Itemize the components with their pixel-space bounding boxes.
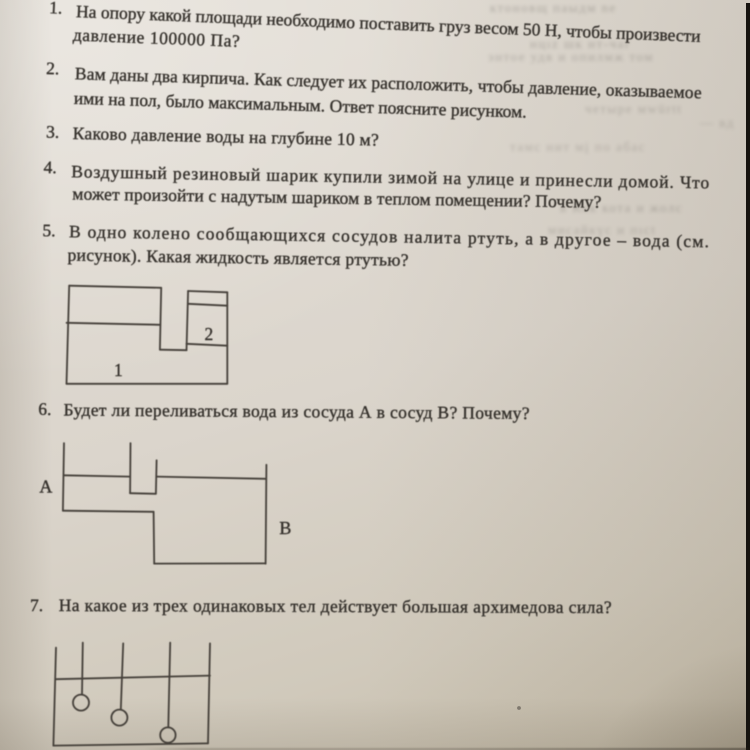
svg-text:ктоновщ паыдм ne: ктоновщ паыдм ne: [490, 0, 617, 15]
svg-text:На какое из трех одинаковых те: На какое из трех одинаковых тел действуе…: [59, 595, 612, 617]
svg-text:1.: 1.: [49, 0, 63, 18]
svg-text:7.: 7.: [30, 595, 43, 615]
svg-text:тамс нит мį по абас: тамс нит мį по абас: [510, 139, 646, 154]
svg-text:А: А: [39, 477, 52, 497]
svg-text:1: 1: [114, 360, 123, 380]
svg-text:В: В: [279, 518, 291, 538]
svg-text:2.: 2.: [46, 58, 60, 78]
svg-text:4.: 4.: [43, 157, 56, 177]
svg-text:3.: 3.: [46, 122, 60, 142]
svg-text:четыре мwürtt: четыре мwürtt: [585, 101, 682, 116]
svg-text:давление 100000 Па?: давление 100000 Па?: [73, 25, 241, 51]
svg-text:Будет ли переливаться вода из: Будет ли переливаться вода из сосуда А в…: [63, 400, 529, 423]
svg-text:5.: 5.: [42, 220, 55, 240]
svg-text:рисунок). Какая жидкость являе: рисунок). Какая жидкость является ртутью…: [67, 245, 408, 270]
svg-text:6.: 6.: [38, 399, 51, 419]
svg-text:2: 2: [205, 324, 214, 344]
svg-text:энтое удв и опилмж том: энтое удв и опилмж том: [488, 49, 654, 64]
svg-text:— вд: — вд: [699, 115, 735, 130]
svg-text:Каково давление воды на глубин: Каково давление воды на глубине 10 м?: [73, 123, 380, 150]
